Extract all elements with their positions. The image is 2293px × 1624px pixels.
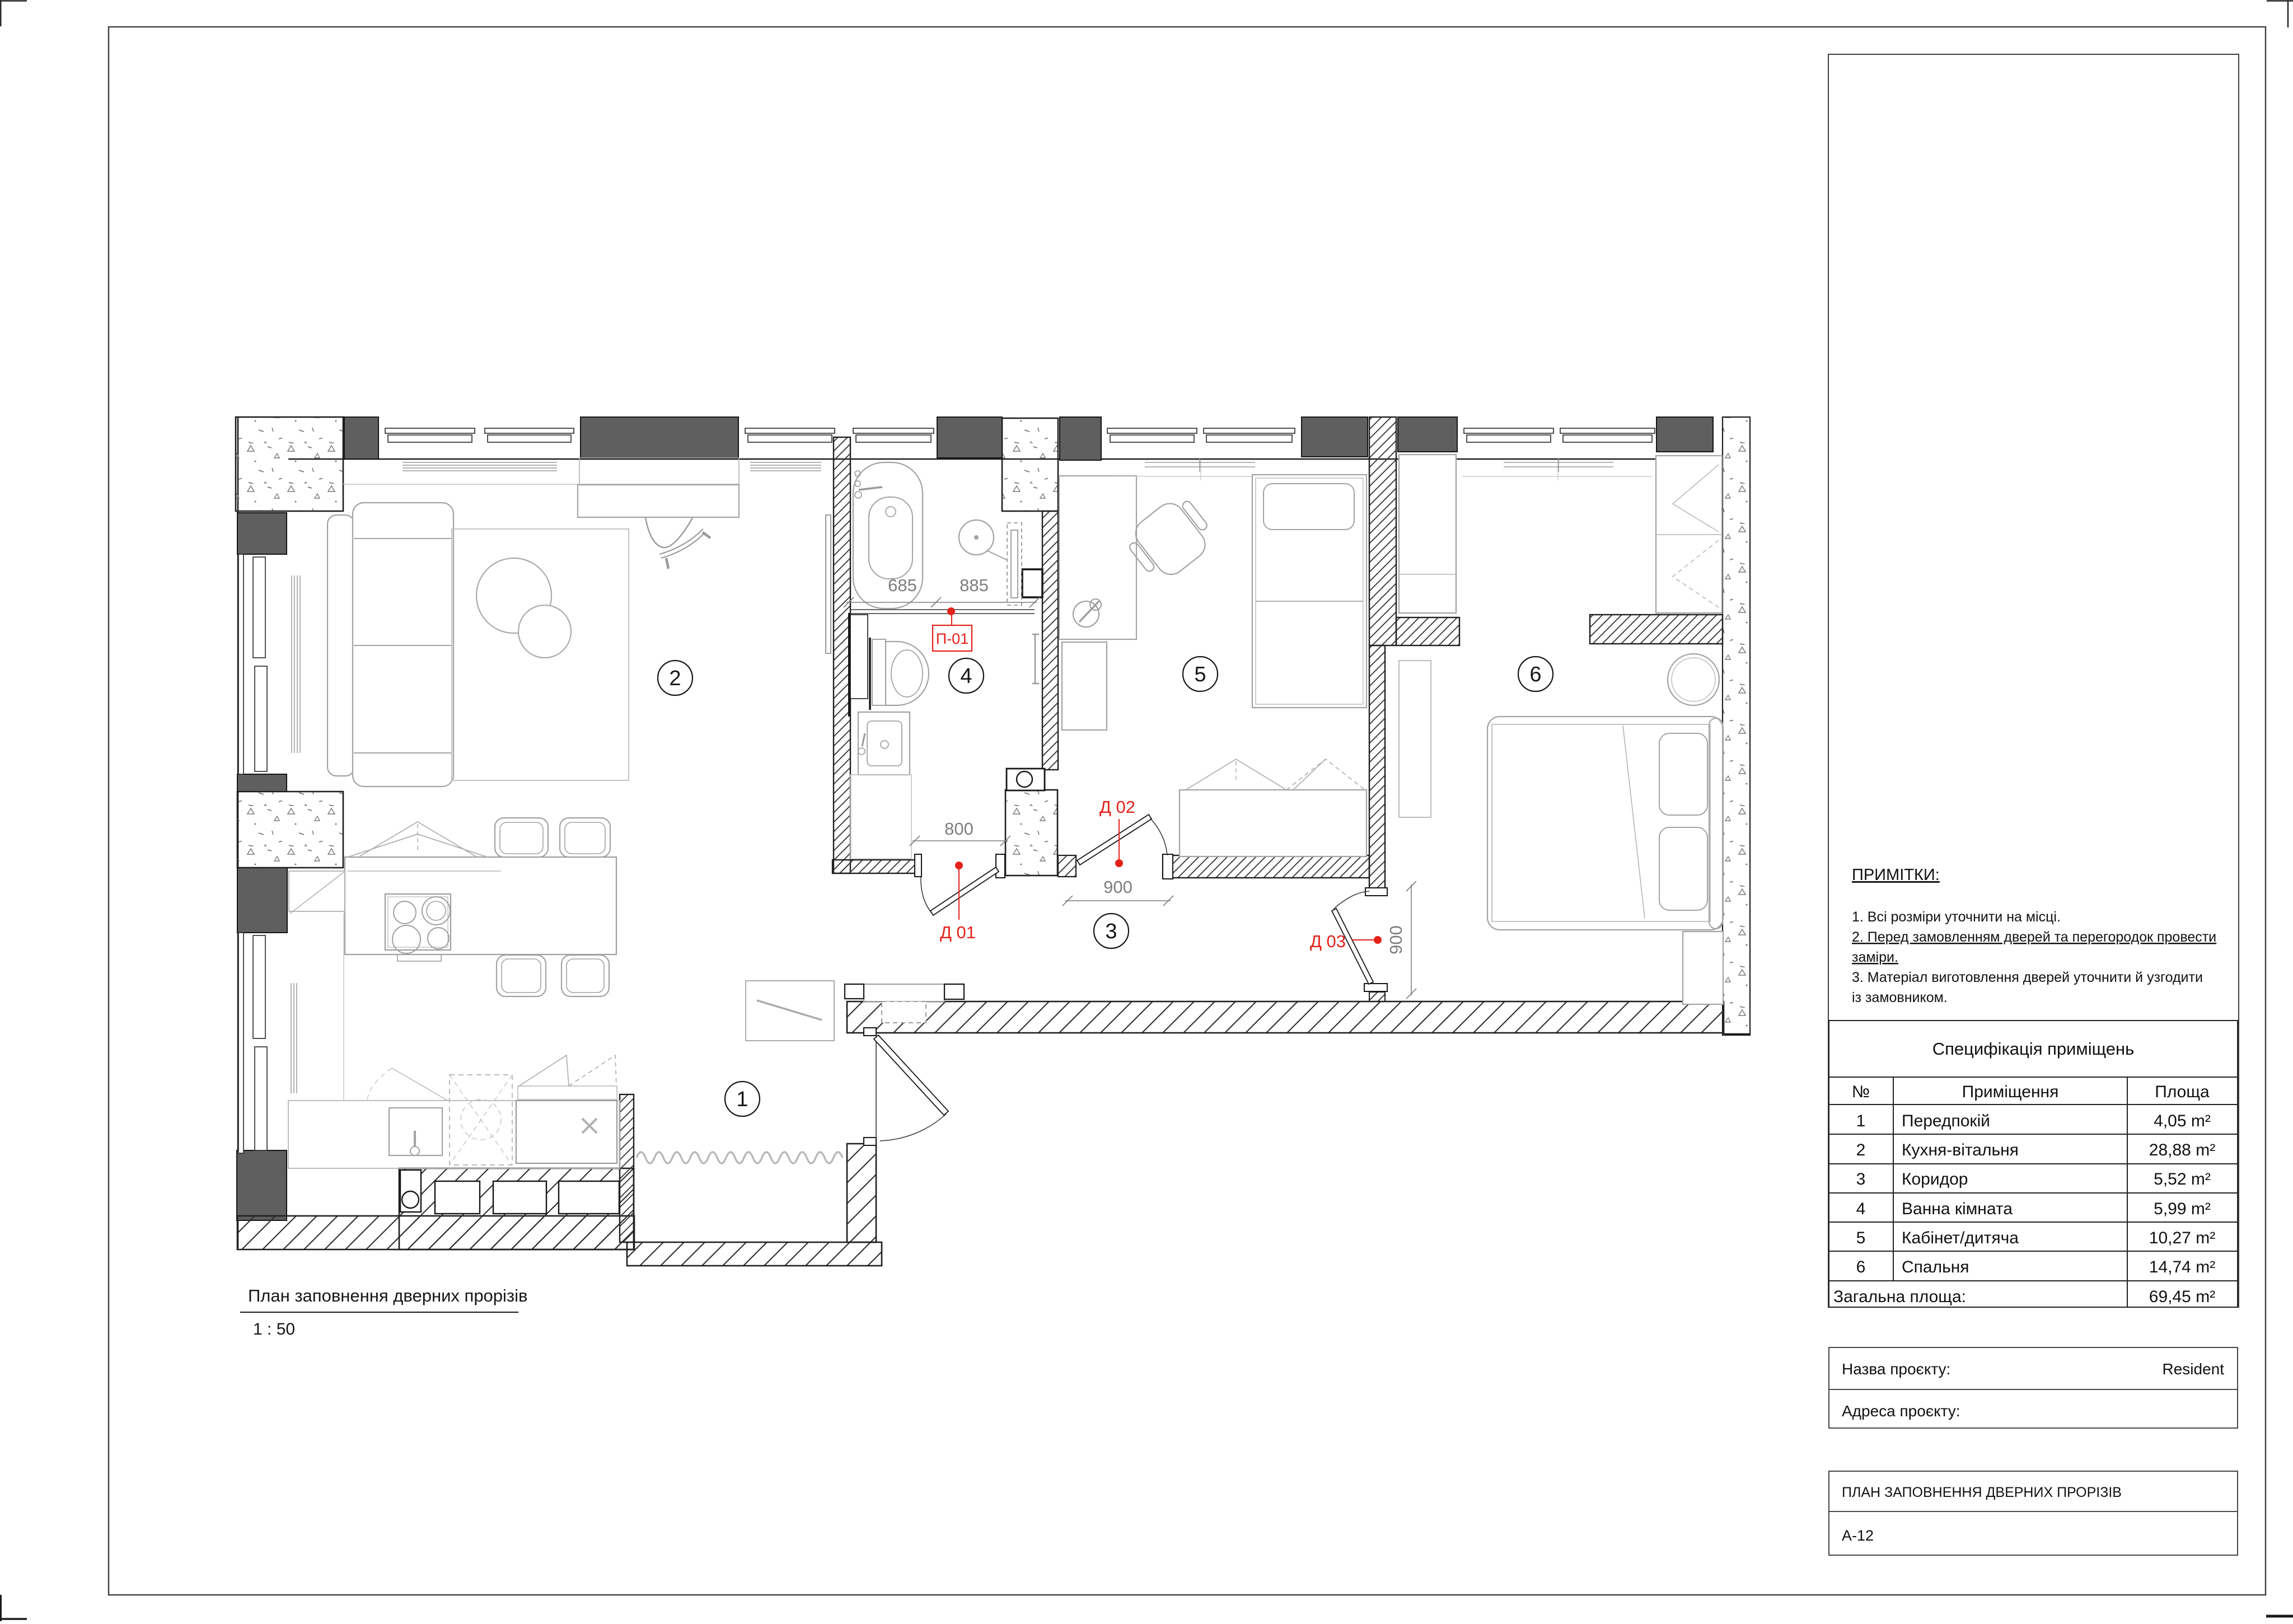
svg-text:Кухня-вітальня: Кухня-вітальня <box>1902 1141 2019 1159</box>
svg-text:2. Перед замовленням дверей та: 2. Перед замовленням дверей та перегород… <box>1852 929 2216 945</box>
svg-text:800: 800 <box>944 819 974 839</box>
svg-text:1: 1 <box>1856 1112 1866 1130</box>
svg-text:5: 5 <box>1856 1229 1866 1247</box>
svg-text:Коридор: Коридор <box>1902 1170 1968 1188</box>
svg-text:Д 03: Д 03 <box>1310 932 1346 951</box>
svg-text:6: 6 <box>1856 1258 1866 1276</box>
svg-text:5,99 m²: 5,99 m² <box>2154 1200 2211 1218</box>
svg-text:№: № <box>1852 1083 1870 1101</box>
svg-text:900: 900 <box>1103 877 1133 897</box>
svg-text:ПЛАН ЗАПОВНЕННЯ ДВЕРНИХ ПРОРІЗ: ПЛАН ЗАПОВНЕННЯ ДВЕРНИХ ПРОРІЗІВ <box>1842 1485 2122 1500</box>
svg-text:План заповнення дверних проріз: План заповнення дверних прорізів <box>248 1286 528 1305</box>
svg-text:Приміщення: Приміщення <box>1962 1083 2059 1101</box>
svg-text:Д 02: Д 02 <box>1099 797 1135 817</box>
svg-text:Площа: Площа <box>2155 1083 2210 1101</box>
svg-text:Спальня: Спальня <box>1902 1258 1969 1276</box>
svg-text:28,88 m²: 28,88 m² <box>2149 1141 2215 1159</box>
svg-text:ПРИМІТКИ:: ПРИМІТКИ: <box>1852 866 1940 884</box>
svg-text:2: 2 <box>1856 1141 1866 1159</box>
svg-text:П-01: П-01 <box>936 630 968 647</box>
svg-text:Адреса проєкту:: Адреса проєкту: <box>1842 1402 1960 1420</box>
svg-text:із замовником.: із замовником. <box>1852 990 1948 1005</box>
svg-text:1. Всі розміри уточнити на міс: 1. Всі розміри уточнити на місці. <box>1852 909 2061 925</box>
svg-text:Ванна кімната: Ванна кімната <box>1902 1200 2013 1218</box>
svg-text:3: 3 <box>1105 920 1117 943</box>
svg-text:Специфікація приміщень: Специфікація приміщень <box>1932 1039 2135 1059</box>
svg-text:1 : 50: 1 : 50 <box>253 1320 295 1338</box>
svg-text:Д 01: Д 01 <box>940 923 976 942</box>
svg-text:6: 6 <box>1529 663 1541 686</box>
svg-text:Назва проєкту:: Назва проєкту: <box>1842 1360 1950 1378</box>
svg-text:5: 5 <box>1194 663 1206 686</box>
svg-text:4: 4 <box>960 664 972 688</box>
svg-text:3: 3 <box>1856 1170 1866 1188</box>
svg-text:900: 900 <box>1386 925 1406 954</box>
svg-text:10,27 m²: 10,27 m² <box>2149 1229 2215 1247</box>
svg-text:2: 2 <box>669 667 681 690</box>
svg-text:заміри.: заміри. <box>1852 949 1898 965</box>
svg-text:Resident: Resident <box>2162 1360 2224 1378</box>
svg-text:Загальна площа:: Загальна площа: <box>1833 1288 1966 1306</box>
svg-text:3. Матеріал виготовлення двере: 3. Матеріал виготовлення дверей уточнити… <box>1852 970 2203 985</box>
svg-text:Передпокій: Передпокій <box>1902 1112 1990 1130</box>
svg-text:14,74 m²: 14,74 m² <box>2149 1258 2215 1276</box>
svg-text:4,05 m²: 4,05 m² <box>2154 1112 2211 1130</box>
svg-text:А-12: А-12 <box>1842 1527 1874 1544</box>
svg-text:4: 4 <box>1856 1200 1866 1218</box>
svg-text:1: 1 <box>736 1088 748 1111</box>
svg-text:Кабінет/дитяча: Кабінет/дитяча <box>1902 1229 2019 1247</box>
svg-text:685: 685 <box>888 575 917 595</box>
svg-text:885: 885 <box>960 575 989 595</box>
svg-text:69,45 m²: 69,45 m² <box>2149 1288 2215 1306</box>
svg-text:5,52 m²: 5,52 m² <box>2154 1170 2211 1188</box>
